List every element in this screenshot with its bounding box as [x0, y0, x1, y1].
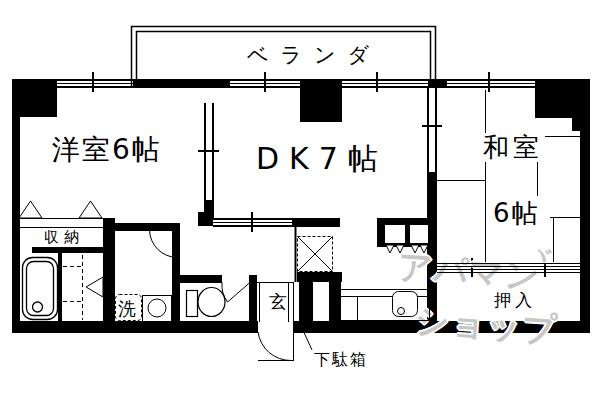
oshiire-door-lines [437, 264, 580, 273]
washroom-door-swing [150, 230, 178, 258]
entrance-door-swing [258, 332, 294, 361]
storage-track-lines [20, 219, 103, 228]
japanese-room-size-label: 6帖 [492, 199, 541, 228]
dressing-dashed-lines [63, 255, 83, 320]
toilet-door-swing [222, 282, 251, 302]
floor-plan: アパマン ヾ ショップ [0, 0, 600, 400]
kitchen-sink-icon [393, 292, 418, 317]
storage-label: 収納 [44, 229, 84, 246]
dk-label: DK7帖 [256, 142, 388, 175]
shoe-cabinet-leader-line [301, 280, 312, 350]
western-room-label: 洋室6帖 [52, 135, 162, 166]
washbasin-icon [143, 296, 172, 322]
toilet-icon [187, 288, 226, 317]
stove-burners-icon [385, 225, 429, 254]
laundry-label: 洗 [118, 299, 136, 319]
shoe-cabinet-label: 下駄箱 [314, 351, 368, 369]
bathtub-icon [23, 258, 58, 320]
japanese-room-label: 和室 [482, 133, 544, 162]
tatami-lines [437, 90, 588, 262]
futon-closet-label: 押入 [494, 291, 536, 310]
entrance-label: 玄 [269, 292, 287, 312]
veranda-label: ベランダ [247, 44, 381, 67]
storage-door-triangles [19, 201, 102, 218]
bath-door-triangle [86, 277, 103, 297]
fridge-space-box [298, 237, 333, 272]
